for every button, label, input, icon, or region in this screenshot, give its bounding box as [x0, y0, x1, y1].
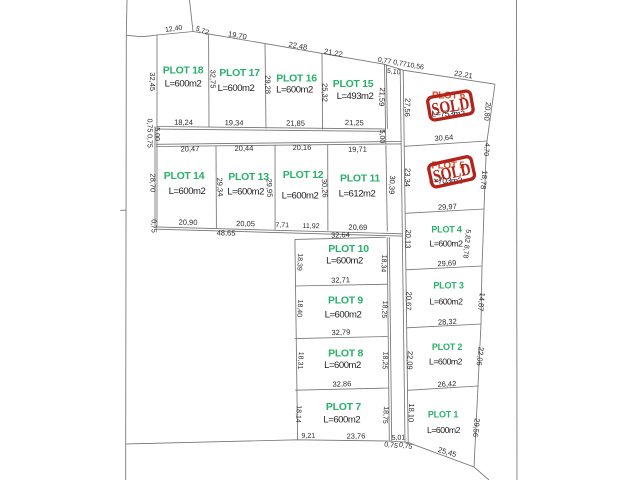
svg-text:L=600m2: L=600m2 [282, 191, 319, 202]
svg-text:25,32: 25,32 [321, 83, 330, 102]
svg-text:32,64: 32,64 [331, 230, 350, 240]
svg-text:18,31: 18,31 [296, 352, 304, 370]
svg-text:18,10: 18,10 [406, 403, 416, 422]
svg-text:23,34: 23,34 [403, 168, 413, 187]
svg-text:30,64: 30,64 [434, 133, 453, 143]
svg-text:18,40: 18,40 [295, 299, 303, 317]
svg-text:0,75 0,75: 0,75 0,75 [146, 119, 153, 148]
svg-text:L=493m2: L=493m2 [337, 91, 374, 102]
svg-text:PLOT 13: PLOT 13 [228, 171, 269, 183]
svg-text:20,47: 20,47 [180, 144, 199, 153]
svg-text:PLOT 16: PLOT 16 [276, 73, 317, 85]
svg-text:PLOT 9: PLOT 9 [328, 295, 363, 307]
svg-text:27,56: 27,56 [403, 98, 413, 117]
svg-text:PLOT 15: PLOT 15 [333, 78, 374, 90]
svg-text:PLOT 11: PLOT 11 [340, 173, 380, 185]
svg-text:PLOT 2: PLOT 2 [432, 342, 462, 352]
svg-text:28,70: 28,70 [149, 173, 158, 192]
svg-text:L=600m2: L=600m2 [165, 79, 202, 90]
svg-text:5,01: 5,01 [392, 434, 406, 441]
svg-text:20,05: 20,05 [236, 219, 255, 228]
svg-text:28,32: 28,32 [438, 317, 457, 327]
svg-text:23,76: 23,76 [346, 431, 365, 440]
svg-text:18,14: 18,14 [294, 405, 302, 423]
svg-text:26,42: 26,42 [437, 379, 456, 389]
svg-text:L=600m2: L=600m2 [326, 256, 363, 267]
svg-text:PLOT 7: PLOT 7 [326, 401, 361, 413]
svg-text:19,71: 19,71 [348, 145, 367, 154]
svg-text:20,69: 20,69 [348, 223, 367, 232]
svg-text:18,34: 18,34 [379, 255, 387, 273]
svg-text:18,25: 18,25 [380, 301, 388, 319]
svg-text:29,97: 29,97 [438, 202, 457, 212]
svg-text:20,44: 20,44 [234, 144, 253, 153]
svg-text:4,70: 4,70 [482, 142, 490, 156]
svg-text:32,71: 32,71 [331, 275, 350, 285]
svg-text:L=600m2: L=600m2 [430, 297, 464, 307]
svg-text:20,90: 20,90 [179, 218, 198, 227]
svg-text:L=600m2: L=600m2 [227, 187, 264, 198]
svg-text:21,25: 21,25 [345, 118, 364, 127]
svg-text:L=612m2: L=612m2 [339, 189, 376, 200]
svg-text:21,59: 21,59 [377, 87, 387, 106]
svg-text:48,65: 48,65 [217, 228, 236, 237]
svg-text:PLOT 4: PLOT 4 [431, 225, 461, 235]
svg-text:20,16: 20,16 [292, 143, 311, 152]
svg-text:L=600m2: L=600m2 [276, 85, 313, 96]
svg-text:18,39: 18,39 [295, 253, 303, 271]
svg-text:32,79: 32,79 [331, 327, 350, 337]
svg-text:L=600m2: L=600m2 [430, 239, 464, 249]
svg-text:30,26: 30,26 [320, 179, 330, 198]
svg-text:7,71: 7,71 [275, 222, 289, 229]
svg-text:21,85: 21,85 [286, 119, 305, 128]
svg-text:5,00: 5,00 [153, 127, 160, 141]
svg-text:L=600m2: L=600m2 [323, 415, 360, 426]
svg-text:PLOT 17: PLOT 17 [219, 67, 260, 79]
svg-text:0,75: 0,75 [150, 219, 157, 233]
svg-text:11,92: 11,92 [302, 223, 319, 230]
svg-text:19,34: 19,34 [225, 118, 244, 127]
svg-text:22,09: 22,09 [405, 351, 415, 370]
svg-text:PLOT 3: PLOT 3 [433, 281, 463, 291]
svg-text:32,45: 32,45 [148, 72, 157, 91]
svg-text:29,28: 29,28 [264, 75, 273, 94]
svg-text:PLOT 12: PLOT 12 [283, 169, 324, 181]
svg-text:PLOT 10: PLOT 10 [328, 243, 369, 255]
svg-text:L=600m2: L=600m2 [169, 186, 206, 197]
svg-text:L=600m2: L=600m2 [324, 360, 361, 371]
svg-text:L=600m2: L=600m2 [427, 425, 461, 435]
svg-text:20,13: 20,13 [403, 229, 413, 248]
svg-text:L=600m2: L=600m2 [325, 310, 362, 321]
svg-text:32,86: 32,86 [332, 379, 351, 389]
svg-text:29,69: 29,69 [437, 258, 456, 268]
svg-text:29,34: 29,34 [215, 177, 225, 196]
svg-text:18,75: 18,75 [381, 406, 389, 424]
svg-text:PLOT 14: PLOT 14 [164, 170, 205, 182]
svg-text:L=600m2: L=600m2 [429, 357, 463, 367]
svg-text:18,24: 18,24 [174, 118, 193, 127]
svg-text:PLOT 18: PLOT 18 [163, 65, 204, 77]
svg-text:PLOT 8: PLOT 8 [328, 347, 363, 359]
svg-text:18,25: 18,25 [381, 352, 389, 370]
svg-text:9,21: 9,21 [301, 433, 315, 440]
svg-text:30,39: 30,39 [387, 175, 397, 194]
svg-text:20,67: 20,67 [404, 291, 414, 310]
svg-text:L=600m2: L=600m2 [218, 83, 255, 94]
svg-text:32,75: 32,75 [209, 70, 218, 89]
svg-text:PLOT 1: PLOT 1 [428, 410, 458, 420]
